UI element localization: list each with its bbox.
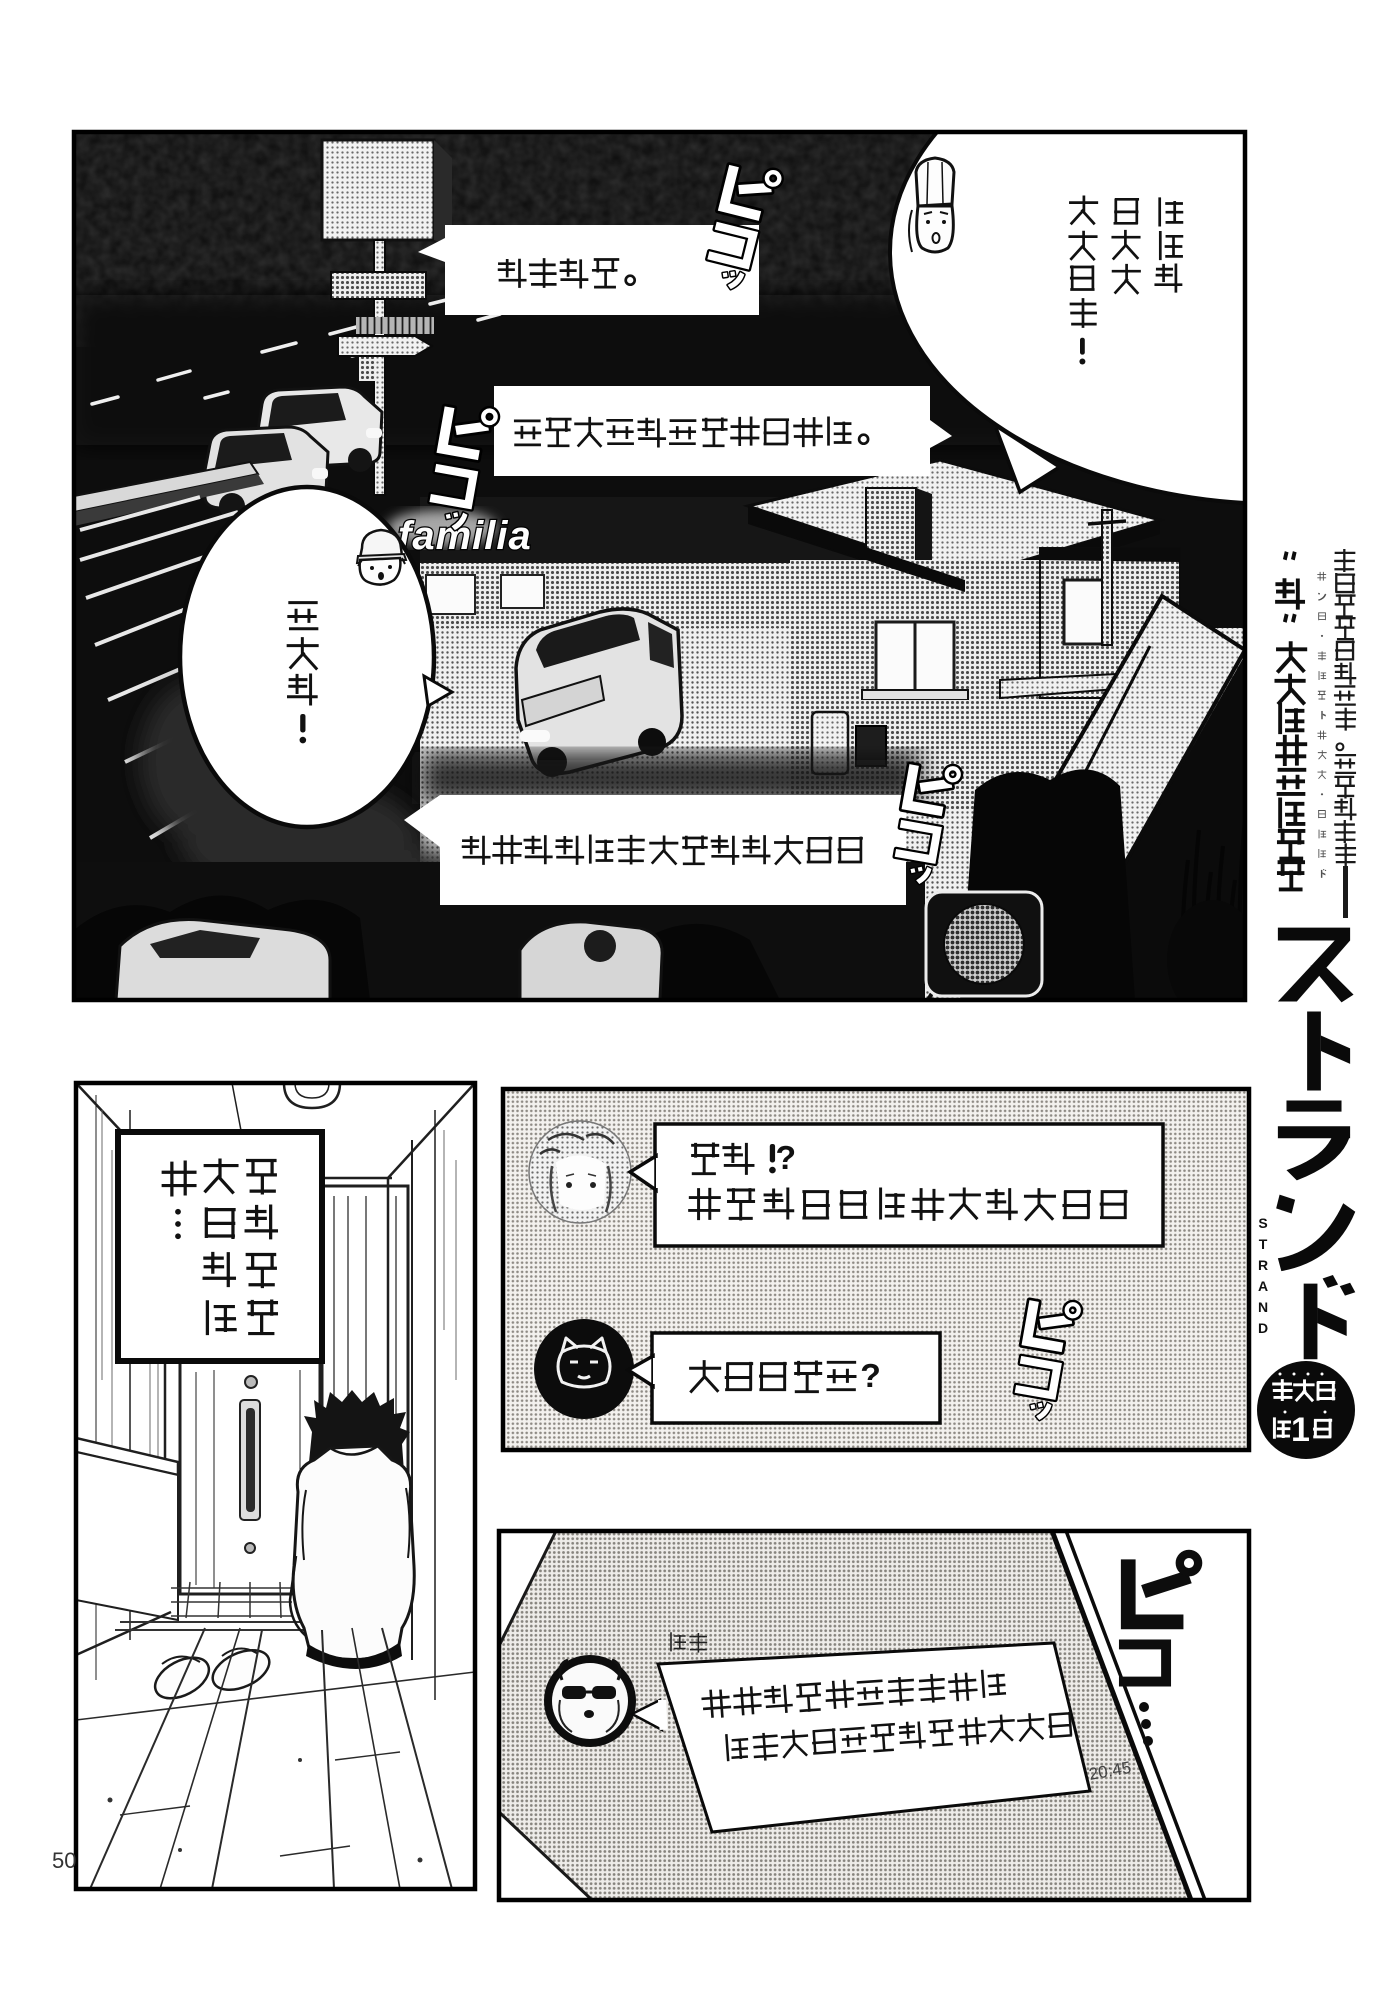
svg-text:S: S bbox=[1258, 1215, 1267, 1231]
svg-text:A: A bbox=[1258, 1278, 1268, 1294]
svg-text:?: ? bbox=[776, 1139, 797, 1177]
svg-text:D: D bbox=[1258, 1320, 1268, 1336]
svg-text:?: ? bbox=[860, 1357, 881, 1395]
svg-text:N: N bbox=[1258, 1299, 1268, 1315]
svg-text:R: R bbox=[1258, 1257, 1268, 1273]
svg-text:50: 50 bbox=[52, 1848, 76, 1873]
svg-text:T: T bbox=[1259, 1236, 1268, 1252]
svg-text:1: 1 bbox=[1291, 1411, 1310, 1449]
